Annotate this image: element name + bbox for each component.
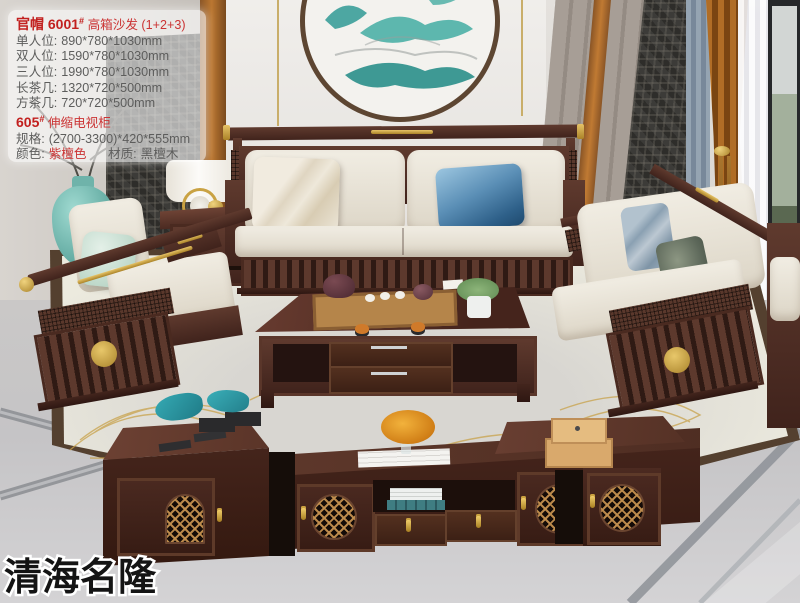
spec-value: 1320*720*500mm — [61, 81, 162, 95]
spec-label: 长茶几: — [16, 81, 57, 95]
tea-pet — [355, 324, 369, 334]
spec-panel: 官帽 6001# 高箱沙发 (1+2+3) 单人位:890*780*1030mm… — [16, 14, 216, 163]
right-sofa-offframe-cushion — [770, 257, 800, 321]
main-sofa-group — [225, 118, 585, 290]
gift-box-dot — [575, 426, 580, 431]
orange-flowers — [381, 410, 435, 444]
size-label: 规格: — [16, 132, 45, 146]
tv-model: 605 — [16, 114, 39, 130]
spec-value: 720*720*500mm — [61, 96, 155, 110]
color-material-row: 颜色:紫檀色 材质:黑檀木 — [16, 147, 216, 163]
tv-center-door-left-handle — [301, 508, 306, 520]
sofa-seat-divider — [402, 228, 404, 255]
tv-left-door-handle — [217, 510, 222, 522]
tv-center-door-right-handle — [521, 498, 526, 510]
color-label: 颜色: — [16, 147, 45, 161]
spec-value: 1590*780*1030mm — [61, 49, 169, 63]
teacup — [365, 294, 375, 302]
tv-size-row: 规格:(2700-3300)*420*555mm — [16, 132, 216, 148]
material-label: 材质: — [108, 147, 137, 161]
spec-label: 双人位: — [16, 49, 57, 63]
color-value: 紫檀色 — [49, 147, 87, 161]
small-teapot — [413, 284, 433, 300]
spec-title: 官帽 6001# 高箱沙发 (1+2+3) — [16, 14, 216, 34]
bird-sculpture-2 — [206, 388, 250, 414]
tv-drawer-left-handle — [406, 520, 411, 532]
tv-drawer-left — [375, 514, 447, 546]
tan-gift-box-top — [551, 418, 607, 444]
tv-drawer-right-handle — [476, 516, 481, 528]
plant-pot — [467, 296, 491, 318]
spec-label: 方茶几: — [16, 96, 57, 110]
series-name: 高箱沙发 (1+2+3) — [88, 18, 186, 32]
tv-right-door-handle — [590, 496, 595, 508]
right-sofa-gold-medallion — [664, 347, 690, 373]
spec-row-single: 单人位:890*780*1030mm — [16, 34, 216, 50]
curtain-tieback — [714, 146, 730, 156]
tv-center-door-left-lattice — [311, 494, 357, 540]
tv-gap-recess — [269, 452, 295, 556]
tv-right-box-front — [583, 468, 661, 546]
living-room-photo: 官帽 6001# 高箱沙发 (1+2+3) 单人位:890*780*1030mm… — [0, 0, 800, 603]
tv-left-door-lattice — [165, 494, 205, 544]
tv-cabinet-title: 605# 伸缩电视柜 — [16, 112, 216, 132]
size-value: (2700-3300)*420*555mm — [49, 132, 190, 146]
tv-right-door-lattice — [599, 484, 645, 532]
coffee-table-drawer-bottom — [329, 366, 453, 394]
spec-value: 1990*780*1030mm — [61, 65, 169, 79]
bird-sculpture-base — [199, 418, 235, 432]
sofa-rail-cap-right — [577, 124, 584, 139]
series-model: 官帽 6001 — [16, 16, 79, 32]
clay-teapot — [323, 274, 355, 298]
chair-rail-tip — [19, 277, 34, 292]
left-chair-group — [15, 175, 265, 413]
tv-cabinet-group — [95, 392, 707, 572]
tv-right-box-recess — [555, 470, 583, 544]
right-sofa-offframe-arm — [767, 223, 800, 428]
sofa-rail-cap-left — [223, 125, 230, 140]
spec-label: 三人位: — [16, 65, 57, 79]
spec-row-double: 双人位:1590*780*1030mm — [16, 49, 216, 65]
teacup-2 — [380, 292, 390, 300]
shelf-teal-books — [387, 500, 445, 510]
model-hash: # — [79, 16, 84, 26]
spec-row-square-tea-table: 方茶几:720*720*500mm — [16, 96, 216, 112]
spec-row-triple: 三人位:1990*780*1030mm — [16, 65, 216, 81]
spec-label: 单人位: — [16, 34, 57, 48]
tea-pet-2 — [411, 322, 425, 332]
chair-gold-medallion — [91, 341, 117, 367]
throw-pillow-blue — [435, 163, 525, 231]
drawer-handle-silver — [371, 346, 407, 349]
teacup-3 — [395, 291, 405, 299]
hanging-wire-left — [277, 0, 279, 126]
brand-watermark: 清海名隆 — [2, 548, 262, 602]
spec-row-long-tea-table: 长茶几:1320*720*500mm — [16, 81, 216, 97]
sofa-rail-gold-inlay — [371, 130, 433, 134]
bird-sculpture — [153, 391, 204, 423]
watermark-text: 清海名隆 — [4, 557, 157, 599]
spec-value: 890*780*1030mm — [61, 34, 162, 48]
tv-model-hash: # — [39, 114, 44, 124]
sofa-seat-cushions — [235, 226, 573, 257]
throw-pillow-marble — [252, 157, 341, 234]
drawer-handle-silver-2 — [371, 372, 407, 375]
tv-name: 伸缩电视柜 — [48, 116, 111, 130]
tv-drawer-right — [445, 510, 517, 542]
shelf-white-books — [390, 488, 442, 500]
hanging-wire-right — [521, 0, 523, 116]
material-value: 黑檀木 — [141, 147, 179, 161]
